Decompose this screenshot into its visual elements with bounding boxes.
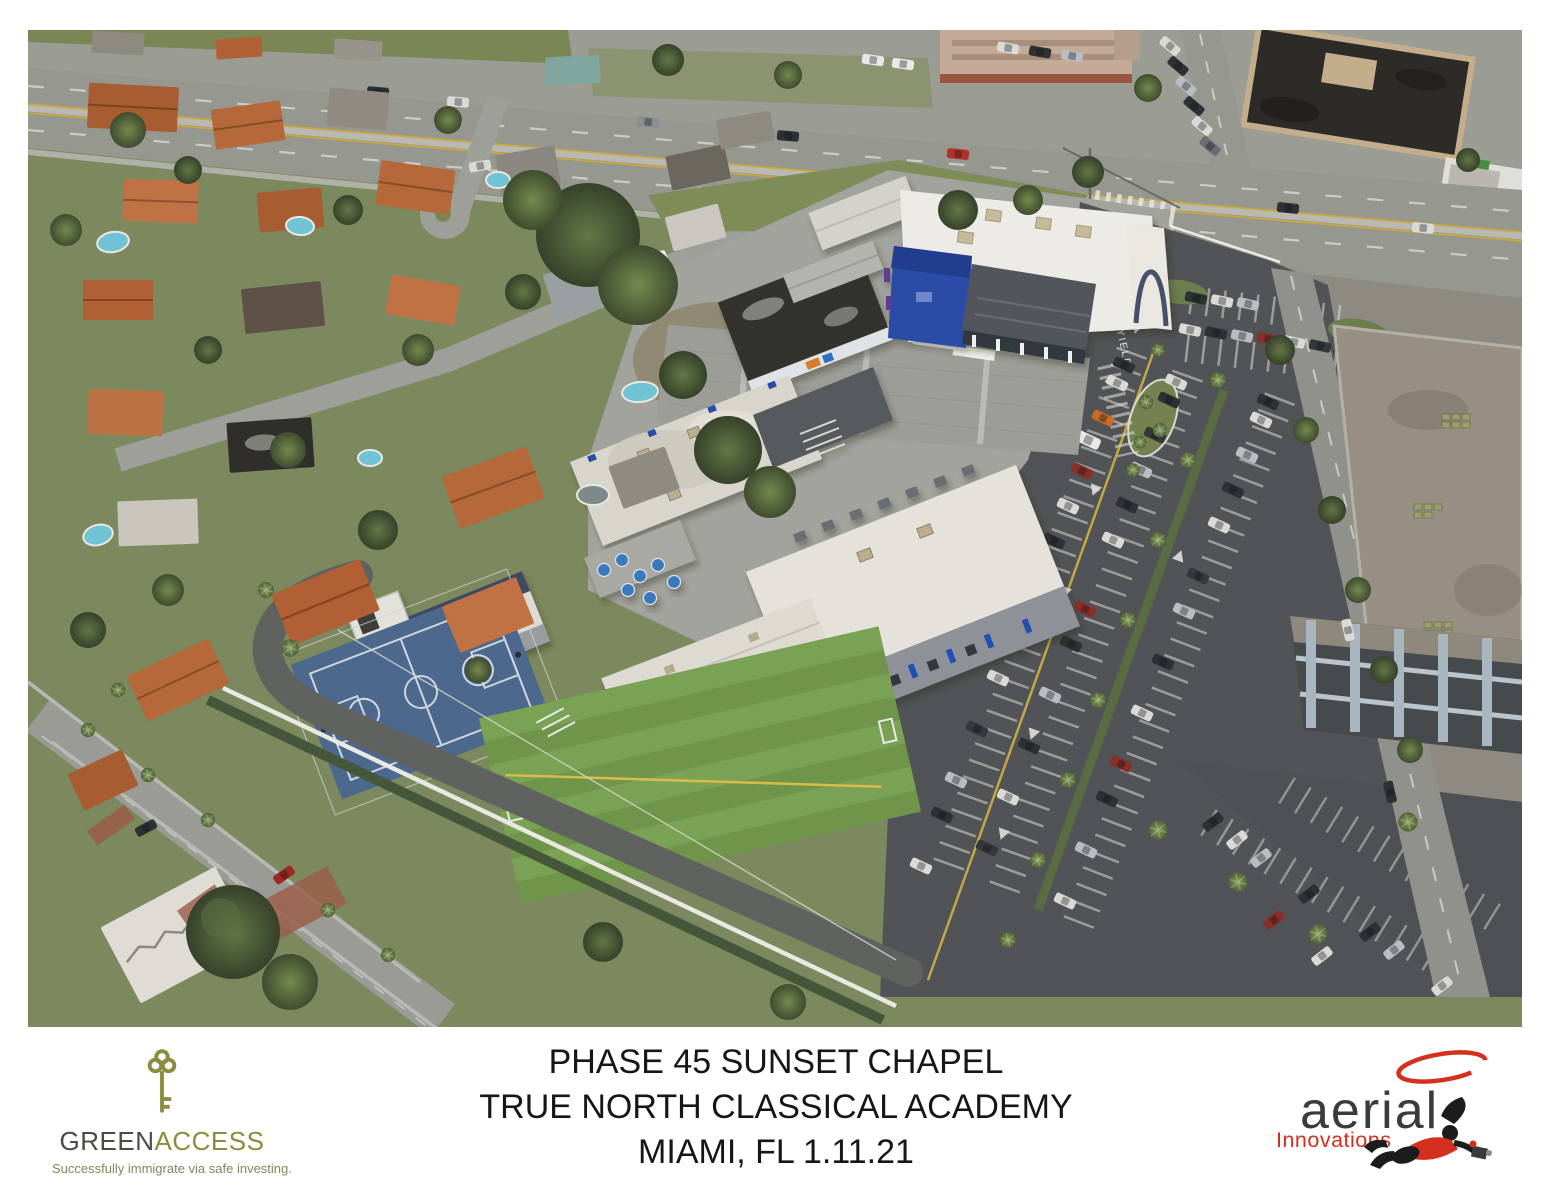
- caption-line-1: PHASE 45 SUNSET CHAPEL: [326, 1040, 1226, 1085]
- aerial-photo-scene: YIELD: [28, 30, 1522, 1027]
- wordmark-green: GREEN: [60, 1126, 155, 1156]
- photo-page: YIELD: [0, 0, 1553, 1200]
- key-icon: [145, 1048, 179, 1120]
- caption-line-3: MIAMI, FL 1.11.21: [326, 1130, 1226, 1175]
- greenaccess-logo: GREENACCESS Successfully immigrate via s…: [52, 1048, 272, 1176]
- camera-icon: [1471, 1146, 1488, 1160]
- wordmark-access: ACCESS: [155, 1126, 265, 1156]
- aerial-innovations-graphic: aerial Innovations: [1262, 1040, 1512, 1190]
- aerial-photo: YIELD: [28, 30, 1522, 1027]
- caption-line-2: TRUE NORTH CLASSICAL ACADEMY: [326, 1085, 1226, 1130]
- photo-caption: PHASE 45 SUNSET CHAPEL TRUE NORTH CLASSI…: [326, 1040, 1226, 1175]
- greenaccess-tagline: Successfully immigrate via safe investin…: [52, 1161, 272, 1176]
- aerial-innovations-logo: aerial Innovations: [1262, 1040, 1512, 1190]
- red-swoosh-icon: [1397, 1047, 1488, 1086]
- purple-accent: [884, 268, 890, 282]
- empty-pool: [577, 485, 609, 505]
- greenaccess-wordmark: GREENACCESS: [52, 1126, 272, 1157]
